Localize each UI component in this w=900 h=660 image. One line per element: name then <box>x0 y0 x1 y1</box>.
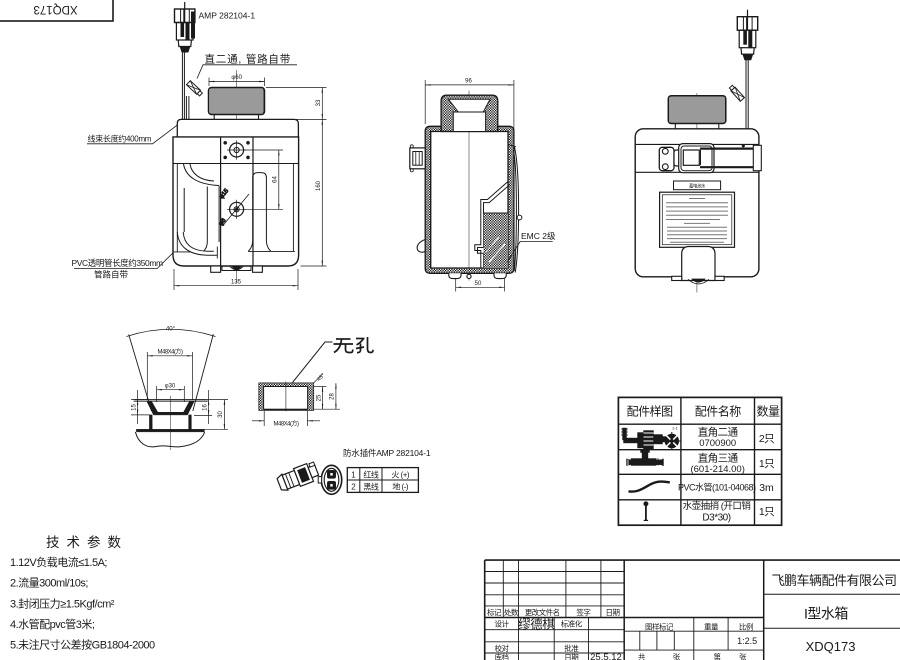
svg-text:库档: 库档 <box>495 652 509 660</box>
svg-text:红线: 红线 <box>363 469 378 479</box>
svg-text:25: 25 <box>316 394 322 401</box>
svg-text:直二通, 管路自带: 直二通, 管路自带 <box>205 53 292 66</box>
svg-text:33: 33 <box>316 99 322 106</box>
svg-text:2只: 2只 <box>759 433 774 445</box>
svg-text:1:2.5: 1:2.5 <box>737 636 757 646</box>
svg-text:φ30: φ30 <box>165 383 176 389</box>
svg-text:PVC水管(101-04068): PVC水管(101-04068) <box>678 482 756 493</box>
svg-text:XDQ173: XDQ173 <box>806 639 856 654</box>
svg-text:15: 15 <box>131 404 137 411</box>
svg-text:地 (-): 地 (-) <box>392 482 409 492</box>
svg-text:处数: 处数 <box>504 607 519 617</box>
svg-text:160: 160 <box>316 180 322 191</box>
svg-text:黑线: 黑线 <box>363 482 378 492</box>
svg-text:135: 135 <box>231 280 242 286</box>
svg-text:EMC 2级: EMC 2级 <box>521 231 556 241</box>
svg-text:AMP 282104-1: AMP 282104-1 <box>199 11 256 21</box>
svg-text:共: 共 <box>638 653 646 660</box>
svg-text:I型水箱: I型水箱 <box>804 606 848 622</box>
svg-text:张: 张 <box>739 653 747 660</box>
svg-text:(601-214.00): (601-214.00) <box>690 464 744 475</box>
svg-text:设计: 设计 <box>495 619 510 629</box>
svg-text:28: 28 <box>330 393 336 400</box>
svg-text:水壶抽捎 (开口销: 水壶抽捎 (开口销 <box>683 500 752 512</box>
svg-text:16: 16 <box>202 404 208 411</box>
svg-text:3m: 3m <box>759 482 774 494</box>
svg-text:管路自带: 管路自带 <box>94 270 129 280</box>
svg-text:2: 2 <box>351 483 356 492</box>
svg-text:防水插件AMP 282104-1: 防水插件AMP 282104-1 <box>343 448 431 458</box>
svg-text:30: 30 <box>218 411 224 418</box>
svg-text:D3*30): D3*30) <box>702 513 730 524</box>
svg-text:缪德棋: 缪德棋 <box>518 616 555 631</box>
svg-text:3.封闭压力≥1.5Kgf/cm²: 3.封闭压力≥1.5Kgf/cm² <box>10 597 115 611</box>
svg-text:图样标记: 图样标记 <box>645 622 674 632</box>
svg-text:飞鹏车辆配件有限公司: 飞鹏车辆配件有限公司 <box>771 573 896 588</box>
svg-text:签字: 签字 <box>576 607 590 617</box>
svg-text:校对: 校对 <box>495 643 510 653</box>
svg-text:1只: 1只 <box>759 458 774 470</box>
svg-text:直角二通: 直角二通 <box>698 426 739 439</box>
svg-text:1.12V负载电流≤1.5A;: 1.12V负载电流≤1.5A; <box>10 555 107 569</box>
svg-text:PVC透明管长度约350mm: PVC透明管长度约350mm <box>72 258 164 268</box>
svg-text:96: 96 <box>465 79 472 85</box>
svg-text:配件样图: 配件样图 <box>627 404 673 419</box>
svg-text:5.未注尺寸公差按GB1804-2000: 5.未注尺寸公差按GB1804-2000 <box>10 638 155 652</box>
svg-text:1-1: 1-1 <box>672 426 679 431</box>
svg-text:直角三通: 直角三通 <box>698 452 739 465</box>
svg-text:比例: 比例 <box>739 622 753 632</box>
svg-text:更改文件名: 更改文件名 <box>525 607 560 617</box>
svg-text:线束长度约400mm: 线束长度约400mm <box>88 134 152 144</box>
svg-text:日期: 日期 <box>606 608 620 617</box>
svg-text:1只: 1只 <box>759 506 774 518</box>
svg-text:XDQ173: XDQ173 <box>33 3 77 15</box>
svg-text:张: 张 <box>673 653 681 660</box>
svg-text:M48X4(方): M48X4(方) <box>273 420 299 428</box>
svg-text:重量: 重量 <box>704 623 719 632</box>
svg-text:批准: 批准 <box>564 643 579 653</box>
svg-text:50: 50 <box>475 281 482 287</box>
svg-text:日期: 日期 <box>564 653 578 660</box>
svg-text:40°: 40° <box>166 327 176 333</box>
svg-text:数量: 数量 <box>756 404 780 419</box>
svg-text:64: 64 <box>273 176 279 183</box>
svg-text:φ60: φ60 <box>231 75 242 81</box>
svg-text:25.5.12: 25.5.12 <box>590 652 622 660</box>
svg-text:技术参数: 技术参数 <box>46 534 128 550</box>
svg-text:蓄电池水: 蓄电池水 <box>689 183 706 190</box>
svg-text:第: 第 <box>714 652 722 660</box>
svg-text:标准化: 标准化 <box>561 619 583 629</box>
svg-text:1: 1 <box>351 470 356 479</box>
svg-text:0700900: 0700900 <box>699 438 736 449</box>
svg-text:配件名称: 配件名称 <box>695 404 742 419</box>
svg-text:标记: 标记 <box>487 607 502 617</box>
svg-text:4.水管配pvc管3米;: 4.水管配pvc管3米; <box>10 617 95 631</box>
svg-text:M48X4(方): M48X4(方) <box>157 348 183 356</box>
svg-text:2.流量300ml/10s;: 2.流量300ml/10s; <box>10 576 88 590</box>
svg-text:火 (+): 火 (+) <box>391 470 410 479</box>
